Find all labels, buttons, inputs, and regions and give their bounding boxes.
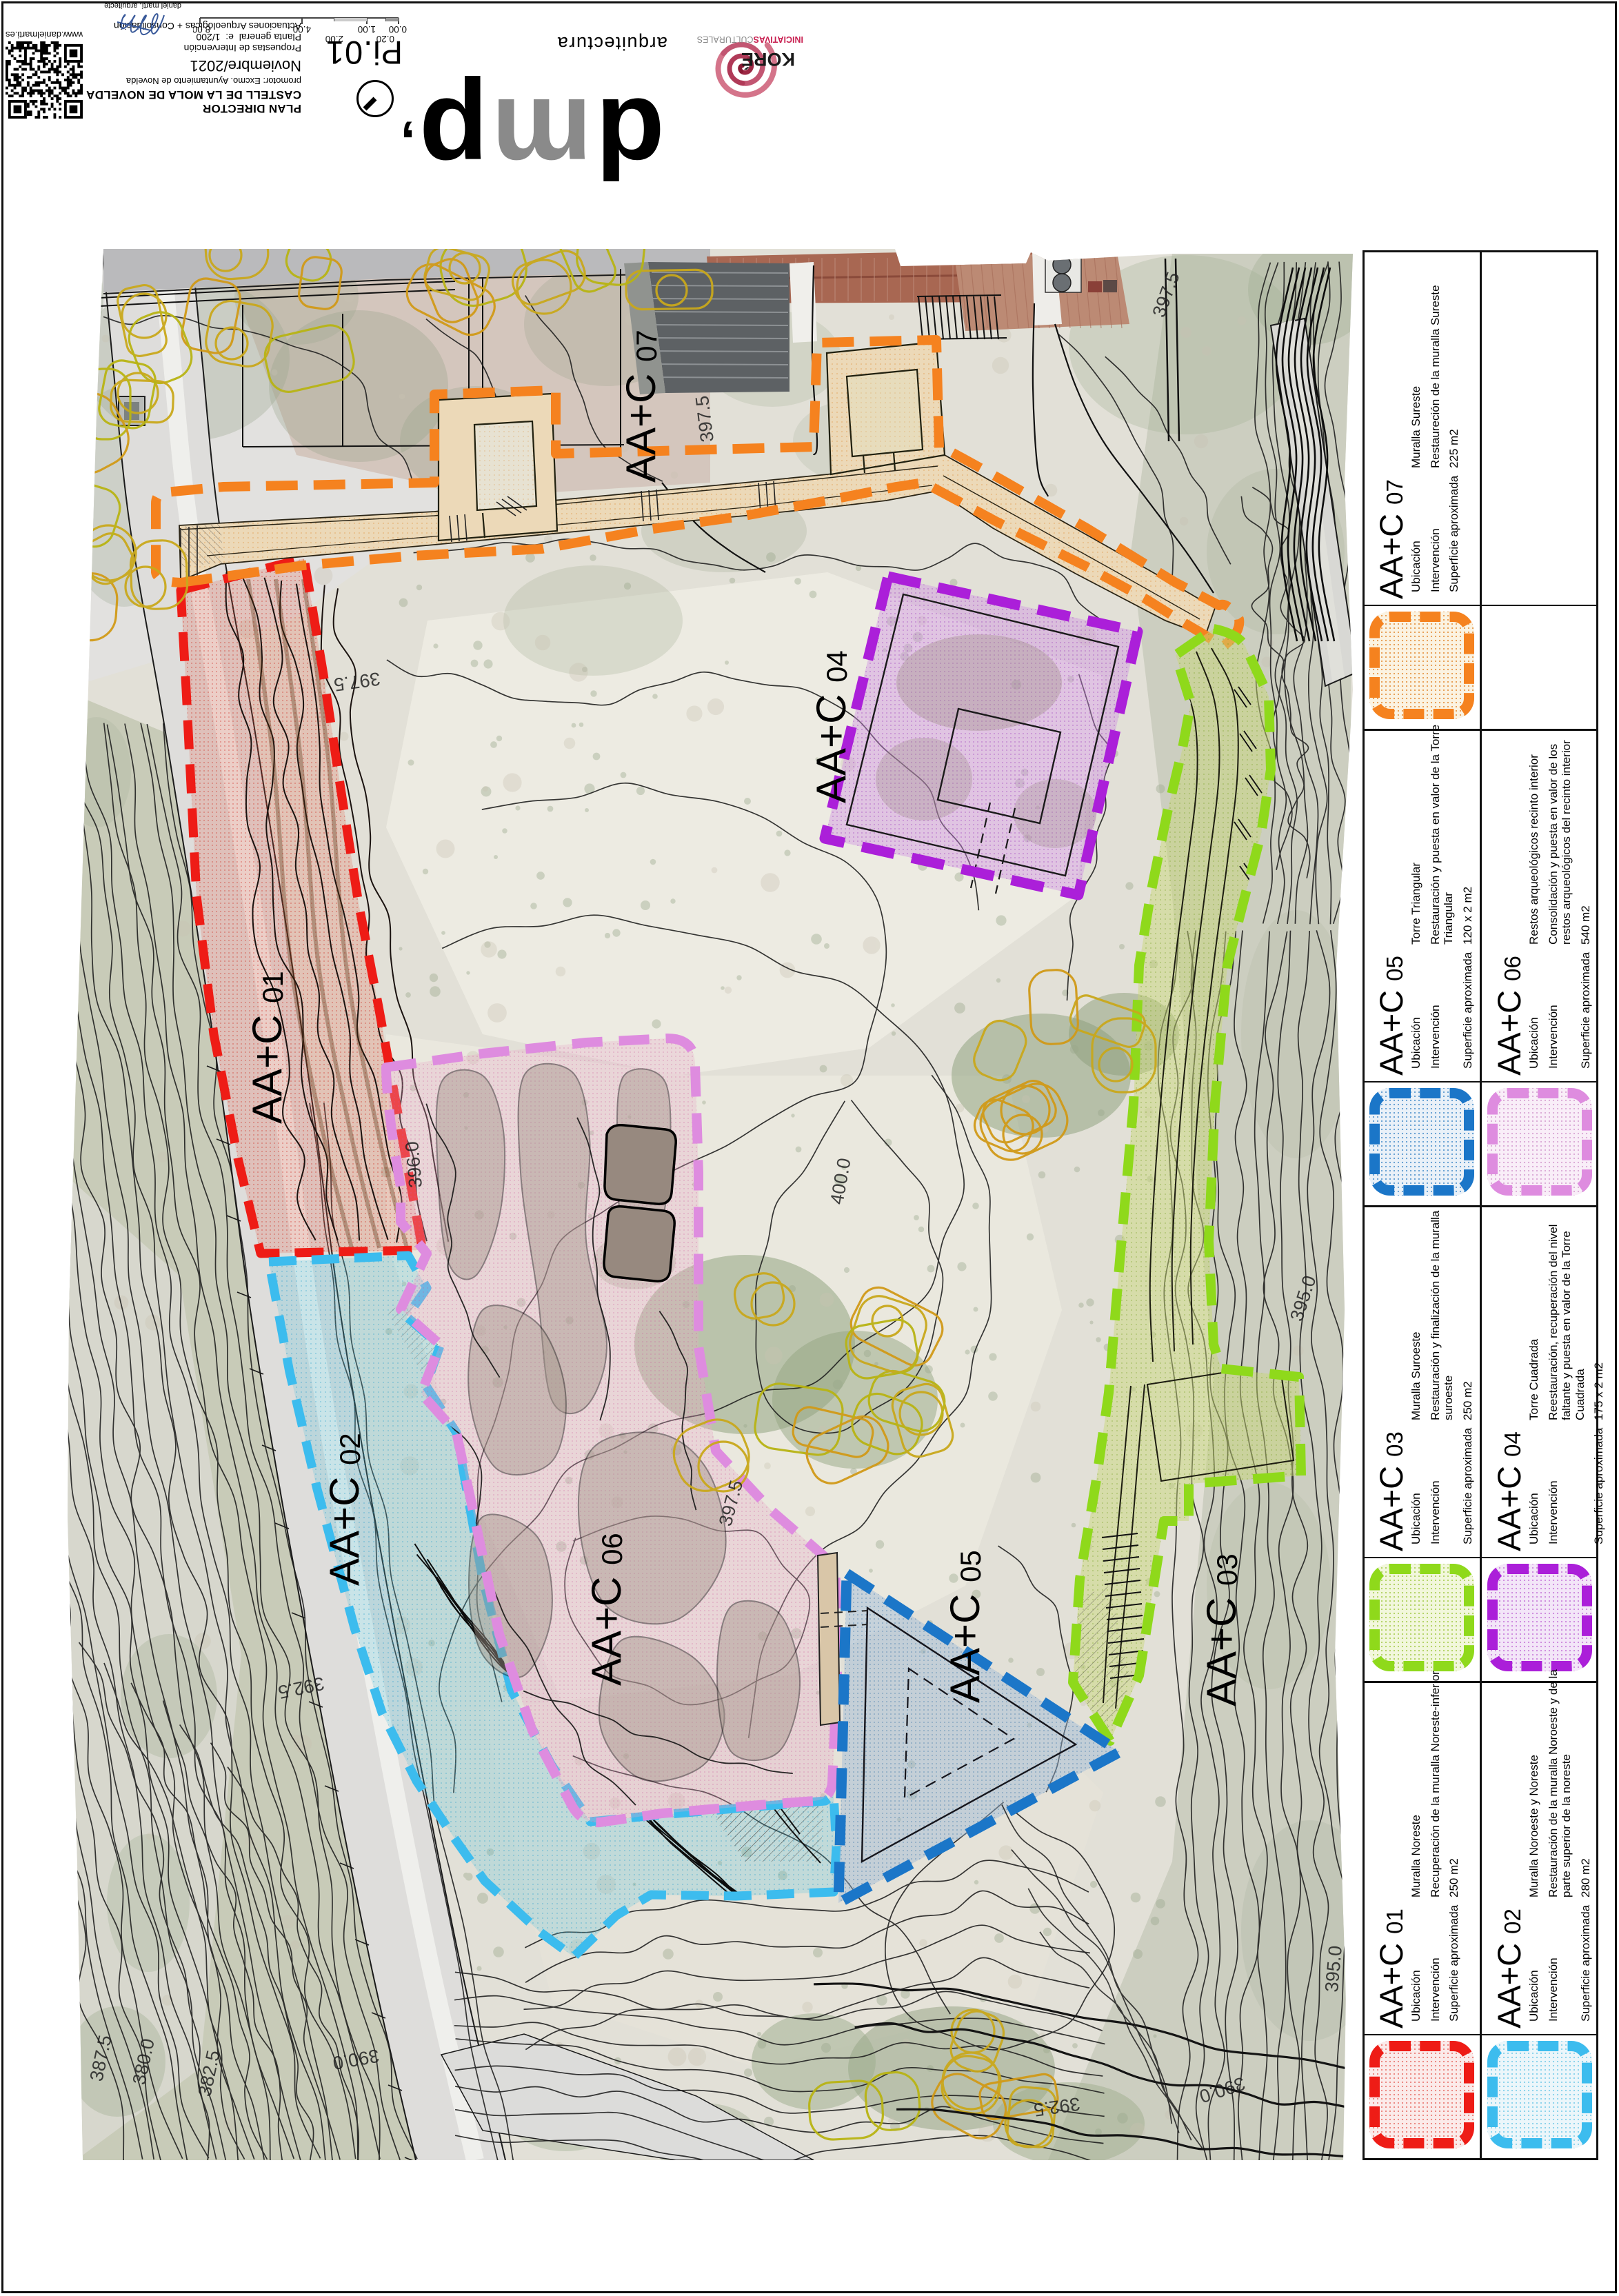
svg-text:8.00: 8.00 [193, 24, 210, 34]
svg-text:KORÉ: KORÉ [741, 49, 795, 70]
svg-text:395.0: 395.0 [1321, 1945, 1346, 1993]
svg-text:0.00: 0.00 [389, 24, 407, 34]
svg-text:INICIATIVASCULTURALES: INICIATIVASCULTURALES [697, 34, 803, 44]
svg-text:396.0: 396.0 [401, 1140, 426, 1189]
svg-text:1.00: 1.00 [358, 24, 376, 34]
svg-text:4.00: 4.00 [293, 24, 311, 34]
